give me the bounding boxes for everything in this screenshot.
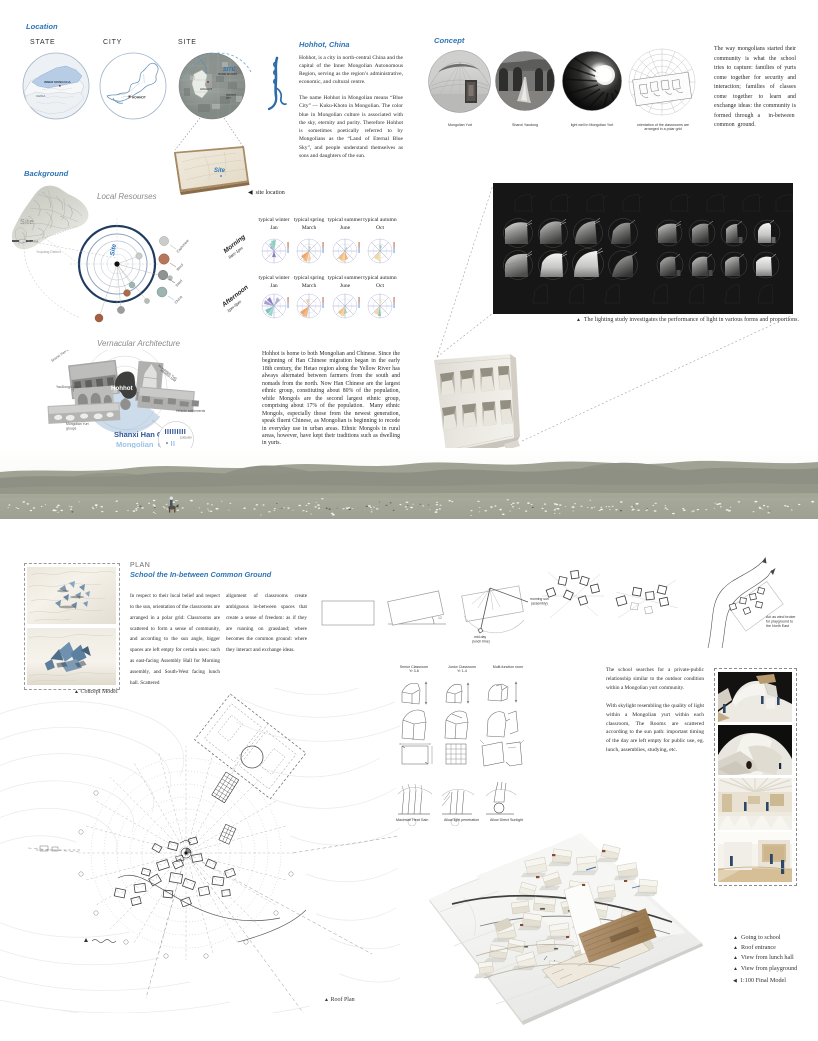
svg-text:June: June: [340, 283, 351, 289]
svg-text:Oct: Oct: [376, 225, 385, 231]
svg-text:typical summer: typical summer: [328, 275, 363, 281]
svg-text:typical winter: typical winter: [259, 217, 290, 223]
svg-text:the North East: the North East: [766, 624, 789, 628]
svg-text:Wool: Wool: [176, 263, 185, 272]
svg-text:mid-day: mid-day: [474, 635, 486, 639]
svg-text:Steel: Steel: [175, 279, 184, 288]
svg-text:June: June: [340, 225, 351, 231]
svg-text:groups: groups: [66, 427, 77, 431]
svg-text:Cashmere: Cashmere: [176, 239, 190, 254]
svg-text:12: 12: [438, 616, 442, 620]
svg-text:China: China: [174, 295, 183, 305]
svg-text:Mongolian Yurt: Mongolian Yurt: [66, 422, 89, 426]
svg-text:typical winter: typical winter: [259, 275, 290, 281]
svg-text:SITE: SITE: [223, 67, 236, 73]
svg-text:for playground to: for playground to: [766, 620, 793, 624]
svg-text:HOHHOT: HOHHOT: [132, 96, 146, 100]
svg-text:March: March: [302, 283, 317, 289]
svg-text:(lunch time): (lunch time): [472, 640, 490, 644]
svg-text:5,000,000: 5,000,000: [180, 436, 192, 440]
svg-text:YaoDong/Cave: YaoDong/Cave: [56, 385, 79, 389]
svg-text:Hohhot: Hohhot: [111, 385, 133, 392]
svg-text:March: March: [302, 225, 317, 231]
svg-text:Site: Site: [214, 168, 226, 174]
svg-text:INNER MONGOLIA: INNER MONGOLIA: [44, 80, 71, 84]
svg-text:Shanxi Han Dwelling: Shanxi Han Dwelling: [50, 350, 78, 363]
svg-text:Oct: Oct: [376, 283, 385, 289]
svg-text:Hillside settlements: Hillside settlements: [176, 409, 205, 413]
svg-text:typical autumn: typical autumn: [363, 217, 397, 223]
svg-text:typical spring: typical spring: [294, 217, 325, 223]
svg-text:CHINA: CHINA: [36, 94, 45, 98]
svg-text:typical spring: typical spring: [294, 275, 325, 281]
svg-text:Jan: Jan: [270, 225, 278, 231]
svg-text:Act as wind broker: Act as wind broker: [766, 615, 796, 619]
svg-text:typical summer: typical summer: [328, 217, 363, 223]
svg-text:Jan: Jan: [270, 283, 278, 289]
svg-text:typical autumn: typical autumn: [363, 275, 397, 281]
